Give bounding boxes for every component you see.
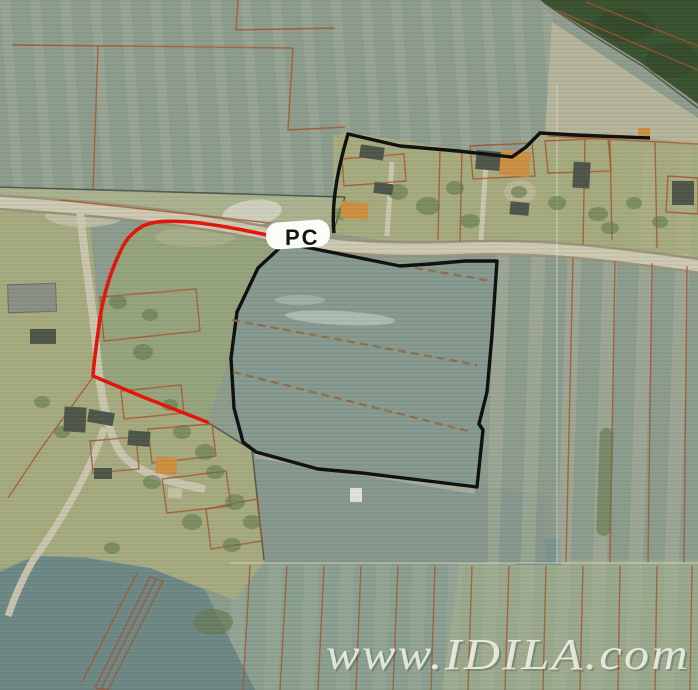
pc-label-text: PC xyxy=(285,225,320,250)
pc-label: PC xyxy=(265,219,331,250)
aerial-map-canvas[interactable]: PC www.IDILA.com www.IDILA.com xyxy=(0,0,698,690)
photo-grain-overlay xyxy=(0,0,698,690)
aerial-map: PC www.IDILA.com www.IDILA.com xyxy=(0,0,698,690)
watermark-text: www.IDILA.com xyxy=(326,630,690,679)
watermark: www.IDILA.com www.IDILA.com xyxy=(326,630,692,681)
